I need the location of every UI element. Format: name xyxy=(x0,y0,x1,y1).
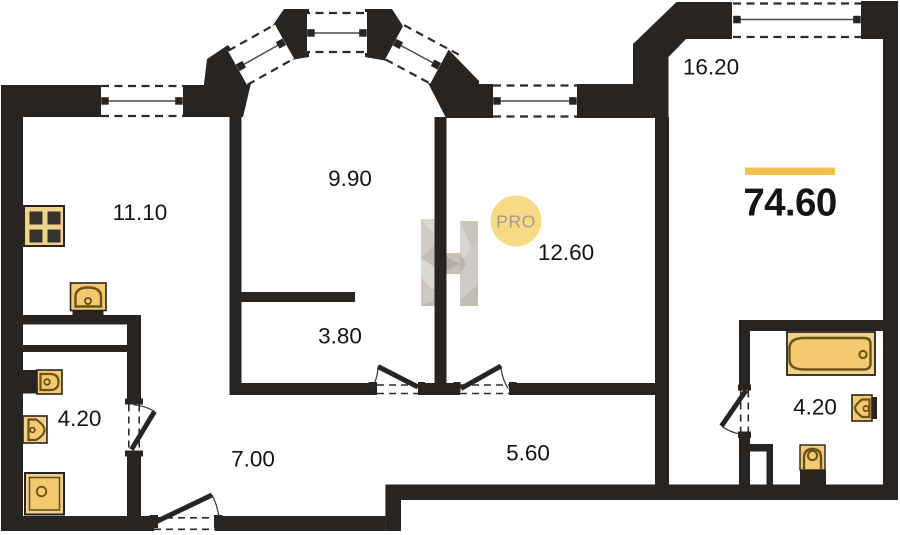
svg-text:4.20: 4.20 xyxy=(793,394,837,419)
svg-text:9.90: 9.90 xyxy=(328,166,372,191)
svg-text:7.00: 7.00 xyxy=(231,447,275,472)
svg-text:74.60: 74.60 xyxy=(743,181,836,224)
svg-text:11.10: 11.10 xyxy=(113,200,168,225)
svg-text:16.20: 16.20 xyxy=(683,54,739,79)
svg-text:3.80: 3.80 xyxy=(318,324,362,349)
svg-text:4.20: 4.20 xyxy=(58,406,102,431)
svg-text:5.60: 5.60 xyxy=(506,440,550,465)
svg-text:PRO: PRO xyxy=(496,212,535,232)
svg-text:12.60: 12.60 xyxy=(538,240,594,265)
